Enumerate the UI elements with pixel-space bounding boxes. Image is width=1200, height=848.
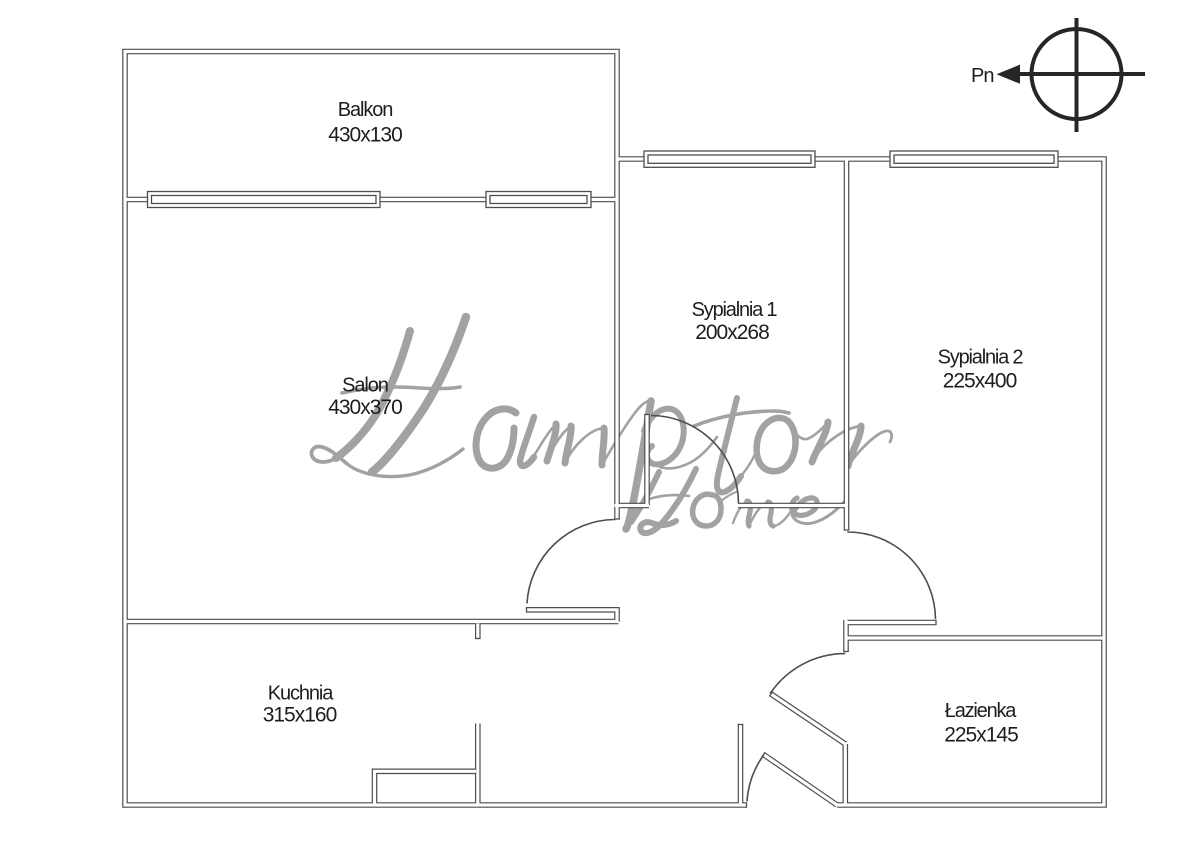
svg-text:430x130: 430x130 (328, 124, 402, 147)
svg-text:315x160: 315x160 (263, 704, 337, 727)
svg-text:Pn: Pn (971, 65, 993, 87)
svg-text:Sypialnia 1: Sypialnia 1 (692, 299, 778, 321)
svg-text:Balkon: Balkon (338, 99, 393, 121)
svg-text:430x370: 430x370 (328, 396, 402, 419)
svg-text:Łazienka: Łazienka (945, 700, 1018, 722)
svg-text:225x145: 225x145 (944, 724, 1018, 747)
svg-text:Sypialnia 2: Sypialnia 2 (938, 347, 1024, 369)
svg-text:225x400: 225x400 (943, 370, 1017, 393)
svg-text:200x268: 200x268 (695, 321, 769, 344)
svg-text:Salon: Salon (342, 375, 388, 397)
svg-text:Kuchnia: Kuchnia (268, 683, 335, 705)
